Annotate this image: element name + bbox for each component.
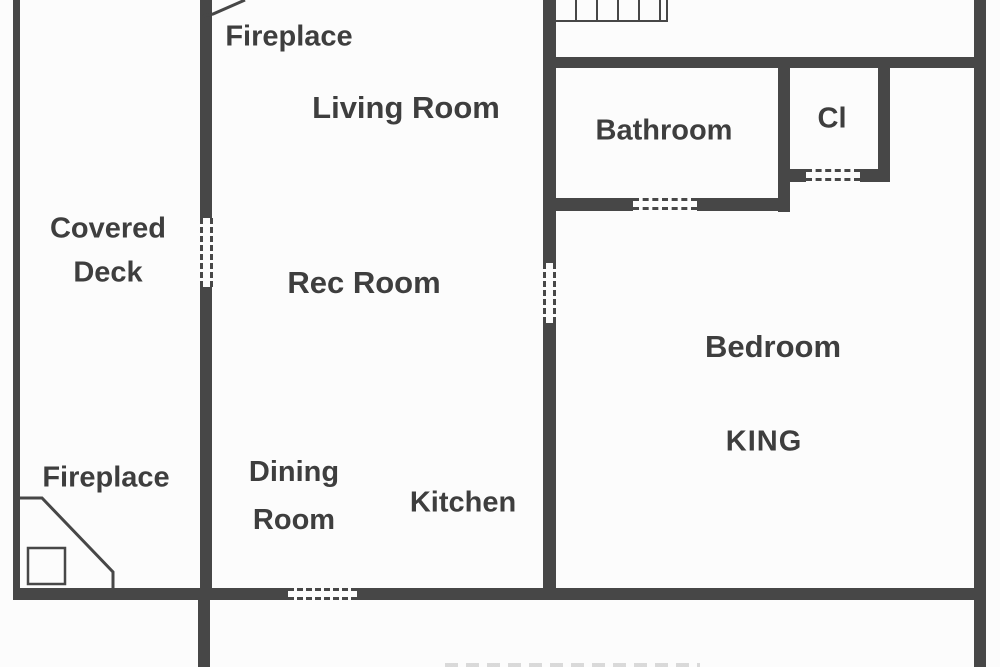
wall-lower-stub [198,600,210,667]
cut-off-text-artifact [445,663,700,667]
wall-closet-bottom-left [778,169,806,182]
upper-fireplace-label: Fireplace [225,20,352,53]
wall-outer-left [13,0,20,600]
wall-deck-divider-lower [200,287,212,600]
dining-room-label-line1: Dining [249,449,339,497]
wall-bathroom-right [778,68,790,212]
staircase [556,0,668,22]
covered-deck-label-line2: Deck [50,251,166,295]
covered-deck-label-line1: Covered [50,208,166,252]
center-wall-opening [543,263,556,323]
closet-door [806,169,860,181]
fireplace-shapes [0,0,1000,667]
bed-type-label: KING [726,425,803,458]
bottom-wall-door [288,588,357,600]
lower-fireplace-label: Fireplace [42,461,169,494]
lower-fireplace-outline [16,498,113,592]
wall-bathroom-bottom-left [553,198,633,211]
bathroom-label: Bathroom [596,114,733,147]
rec-room-label: Rec Room [287,265,440,301]
dining-room-label: Dining Room [249,449,339,545]
wall-bathroom-bottom-right [697,198,790,211]
closet-label: Cl [818,102,847,135]
covered-deck-label: Covered Deck [50,208,166,295]
dining-room-label-line2: Room [249,497,339,545]
bathroom-door [633,198,697,210]
lower-fireplace-firebox [28,548,65,584]
kitchen-label: Kitchen [410,486,516,519]
wall-closet-right [878,68,890,182]
wall-deck-divider-upper [200,0,212,218]
floor-plan: Fireplace Living Room Bathroom Cl Covere… [0,0,1000,667]
wall-bottom-right [357,588,986,600]
wall-bottom-left [13,588,288,600]
wall-center-upper [543,0,556,263]
wall-bathroom-top [549,57,986,68]
living-room-label: Living Room [312,90,500,126]
bedroom-label: Bedroom [705,329,841,365]
wall-outer-right [974,0,986,667]
wall-center-lower [543,323,556,588]
deck-window-opening [200,218,213,287]
